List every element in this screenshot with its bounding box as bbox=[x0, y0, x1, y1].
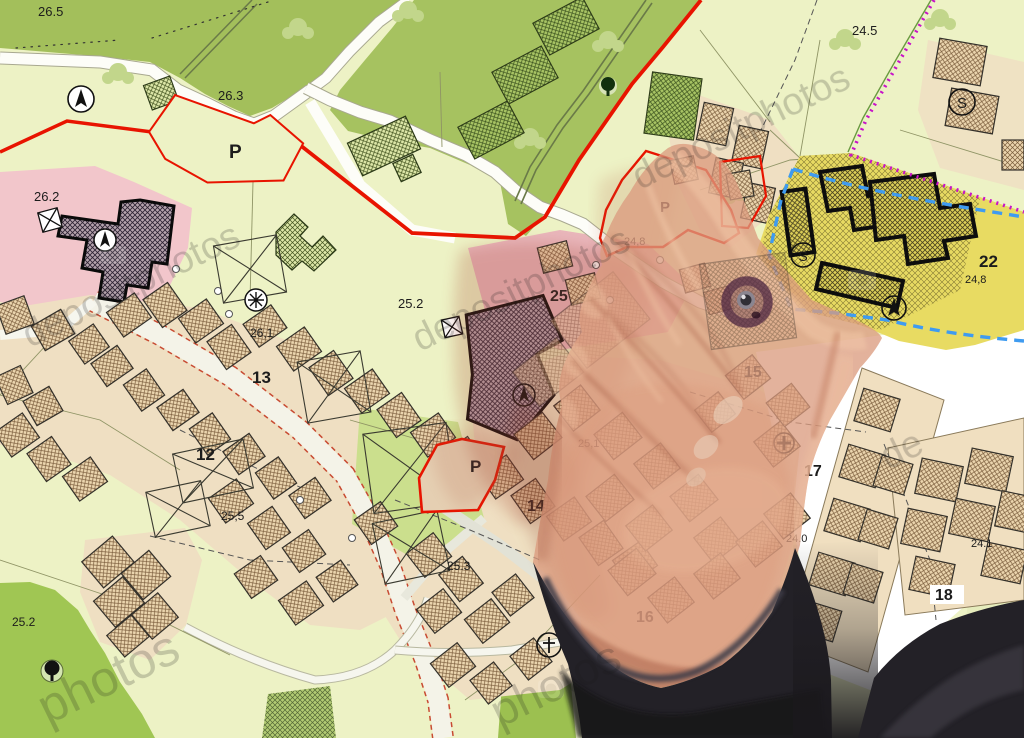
svg-text:S: S bbox=[957, 95, 967, 112]
svg-text:18: 18 bbox=[935, 587, 953, 604]
svg-text:25.2: 25.2 bbox=[398, 296, 423, 311]
svg-text:13: 13 bbox=[252, 368, 271, 387]
svg-text:26.3: 26.3 bbox=[218, 88, 243, 103]
svg-text:24.5: 24.5 bbox=[852, 23, 877, 38]
svg-text:P: P bbox=[229, 142, 242, 163]
svg-text:26.2: 26.2 bbox=[34, 189, 59, 204]
svg-text:26,1: 26,1 bbox=[250, 326, 274, 340]
svg-text:24,8: 24,8 bbox=[965, 274, 986, 286]
svg-text:25,5: 25,5 bbox=[221, 509, 245, 523]
svg-text:24.1: 24.1 bbox=[971, 538, 992, 550]
svg-text:25.3: 25.3 bbox=[447, 559, 471, 573]
svg-text:25.2: 25.2 bbox=[12, 615, 36, 629]
svg-text:26.5: 26.5 bbox=[38, 4, 63, 19]
svg-text:S: S bbox=[798, 248, 807, 264]
svg-text:12: 12 bbox=[196, 445, 215, 464]
svg-text:22: 22 bbox=[979, 252, 998, 271]
